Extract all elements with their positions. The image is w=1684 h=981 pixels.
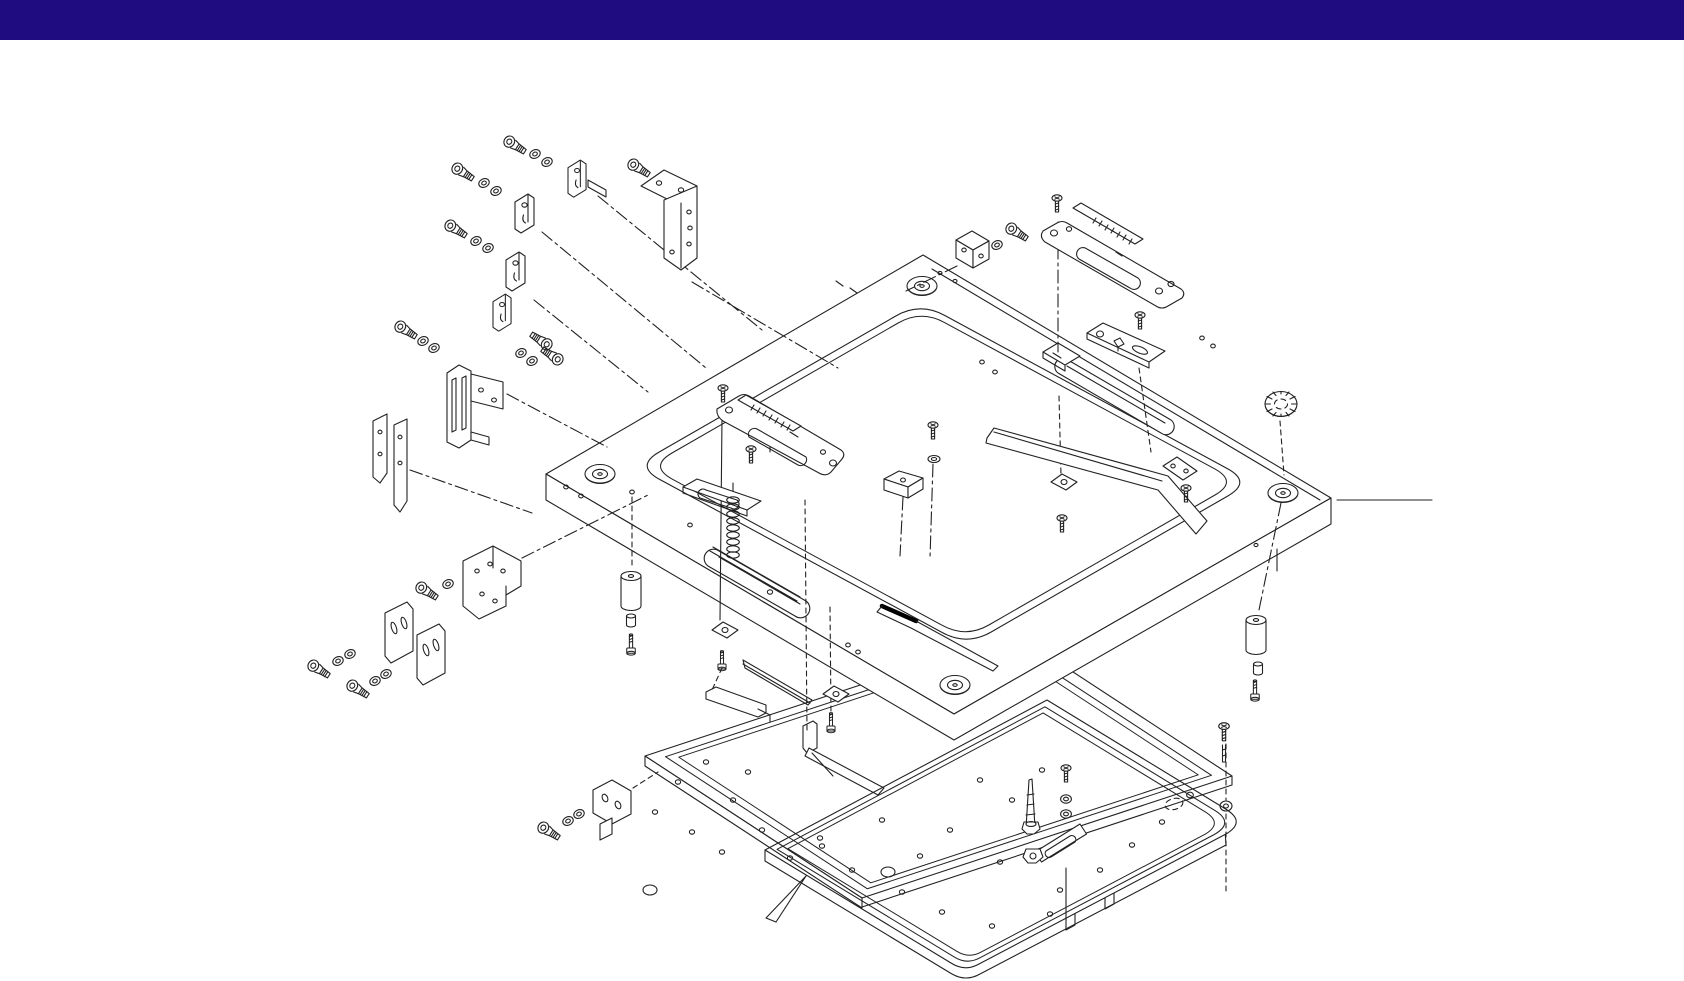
- cluster-top-left-fasteners: [443, 134, 697, 331]
- exploded-assembly-diagram: [0, 40, 1684, 981]
- cylindrical-foot-spacer: [1246, 616, 1266, 655]
- l-mounting-bracket: [536, 780, 631, 843]
- cluster-mid-left-slide: [373, 319, 565, 512]
- support-bar: [373, 414, 387, 483]
- header-bar: [0, 0, 1684, 40]
- clamp-block: [956, 231, 989, 268]
- deflector-bar: [706, 687, 884, 795]
- main-frame-plate: [546, 255, 1331, 740]
- slide-channel-bracket: [447, 365, 503, 448]
- square-washer-plate: [823, 686, 849, 702]
- page: [0, 0, 1684, 981]
- support-bar: [394, 419, 407, 512]
- cylindrical-foot-spacer: [621, 572, 641, 611]
- corner-angle-bracket: [641, 170, 697, 270]
- foot-assembly-right: [1246, 616, 1266, 702]
- stepped-z-bracket: [463, 546, 521, 619]
- mounting-clip-plate: [493, 294, 511, 331]
- square-washer-plate: [712, 622, 738, 638]
- slotted-adjustment-plate: [1041, 222, 1183, 309]
- mounting-clip-plate: [515, 194, 534, 233]
- foot-bolt: [1251, 680, 1260, 701]
- foot-cap: [1254, 662, 1263, 675]
- base-bottom-plate: [765, 700, 1236, 978]
- mounting-clip-plate: [506, 252, 525, 291]
- foot-cap: [627, 614, 636, 627]
- knurled-nut: [1265, 392, 1297, 417]
- mounting-clip-plate: [568, 160, 586, 197]
- foot-bolt: [627, 634, 636, 655]
- rim-groove-strip: [743, 660, 812, 705]
- slotted-shim-plate: [417, 624, 445, 685]
- slotted-shim-plate: [385, 602, 413, 663]
- tray-callout-flag: [766, 876, 806, 922]
- cluster-lower-left-brackets: [306, 546, 521, 701]
- foot-assembly-left: [621, 572, 641, 656]
